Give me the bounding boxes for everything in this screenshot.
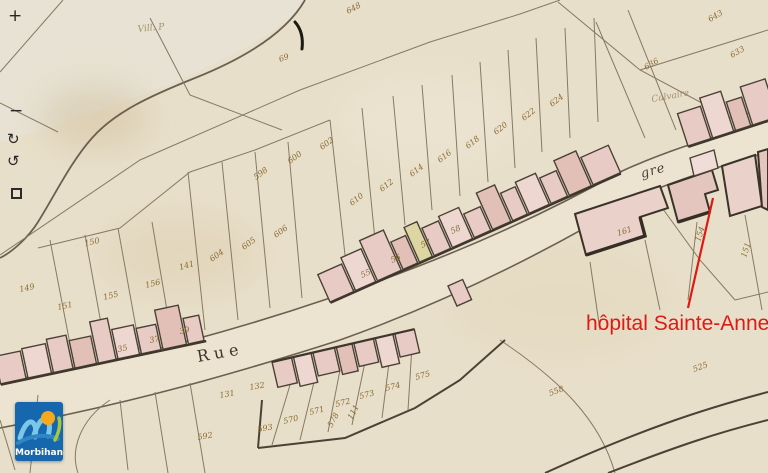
paper-stain <box>40 86 150 150</box>
morbihan-logo-text: Morbihan <box>15 448 63 458</box>
annotation-label: hôpital Sainte-Anne <box>586 312 768 335</box>
cadastral-map[interactable]: 1491511501551561413537391311325986006026… <box>0 0 768 473</box>
map-viewport: 1491511501551561413537391311325986006026… <box>0 0 768 473</box>
sun-icon <box>41 411 55 425</box>
morbihan-logo[interactable]: Morbihan <box>15 402 63 461</box>
leaf-icon <box>55 418 60 440</box>
zoom-out-button[interactable]: − <box>9 103 23 120</box>
paper-highlight <box>340 75 520 165</box>
rotate-clockwise-button[interactable]: ↻ <box>7 132 20 147</box>
zoom-in-button[interactable]: + <box>8 8 22 25</box>
full-extent-icon[interactable] <box>11 188 22 199</box>
paper-stain <box>100 215 260 295</box>
rotate-counterclockwise-button[interactable]: ↺ <box>7 154 20 169</box>
